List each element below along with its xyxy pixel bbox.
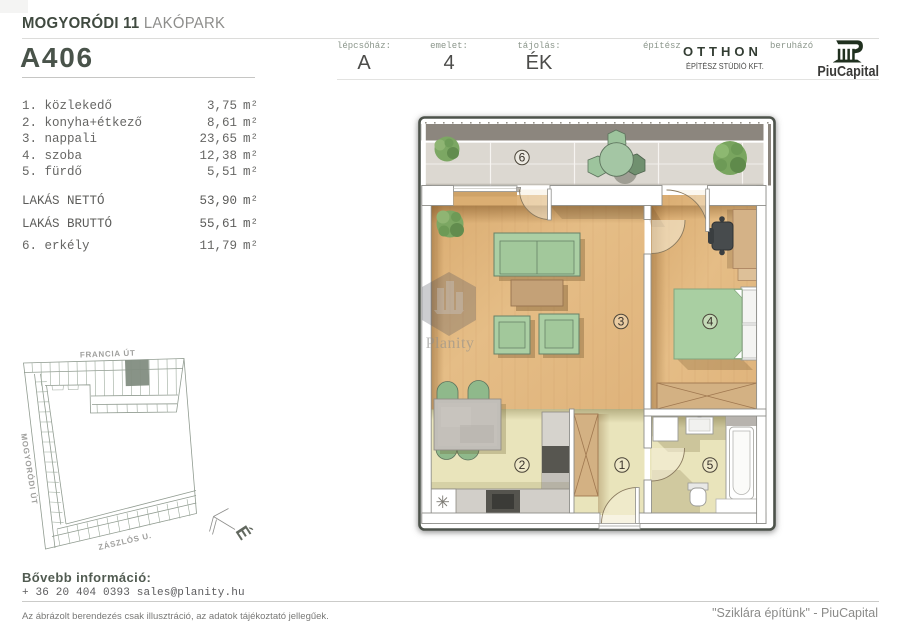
svg-text:FRANCIA ÚT: FRANCIA ÚT — [80, 349, 136, 360]
svg-text:3: 3 — [618, 315, 625, 329]
svg-text:5: 5 — [707, 458, 714, 472]
svg-text:1: 1 — [619, 458, 626, 472]
svg-text:ZÁSZLÓS U.: ZÁSZLÓS U. — [97, 531, 152, 552]
svg-text:6: 6 — [519, 151, 526, 165]
svg-text:2: 2 — [519, 458, 526, 472]
svg-text:É: É — [232, 522, 256, 544]
svg-text:Planity: Planity — [426, 335, 475, 352]
svg-text:4: 4 — [707, 315, 714, 329]
